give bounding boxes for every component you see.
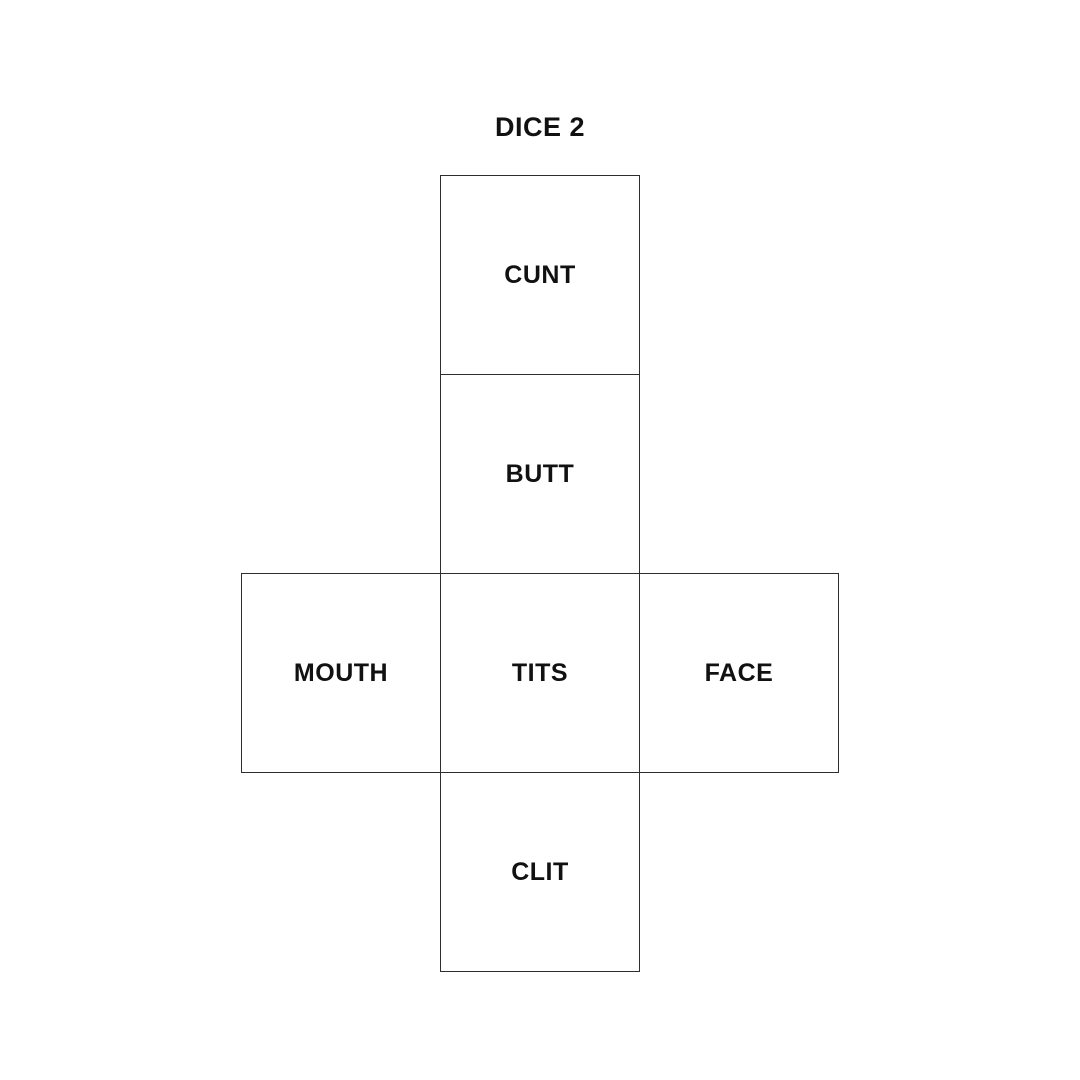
net-cell-bottom: CLIT bbox=[440, 772, 640, 972]
net-cell-top: CUNT bbox=[440, 175, 640, 375]
net-cell-middle-center: TITS bbox=[440, 573, 640, 773]
dice-net-page: DICE 2 CUNT BUTT MOUTH TITS FACE CLIT bbox=[0, 0, 1080, 1080]
page-title: DICE 2 bbox=[0, 112, 1080, 143]
net-cell-bottom-label: CLIT bbox=[511, 858, 569, 887]
net-cell-upper-middle-label: BUTT bbox=[506, 460, 575, 489]
net-cell-top-label: CUNT bbox=[504, 261, 575, 290]
net-cell-middle-right: FACE bbox=[639, 573, 839, 773]
net-cell-upper-middle: BUTT bbox=[440, 374, 640, 574]
net-cell-middle-left: MOUTH bbox=[241, 573, 441, 773]
net-cell-middle-left-label: MOUTH bbox=[294, 659, 388, 688]
net-cell-middle-center-label: TITS bbox=[512, 659, 568, 688]
net-cell-middle-right-label: FACE bbox=[705, 659, 774, 688]
